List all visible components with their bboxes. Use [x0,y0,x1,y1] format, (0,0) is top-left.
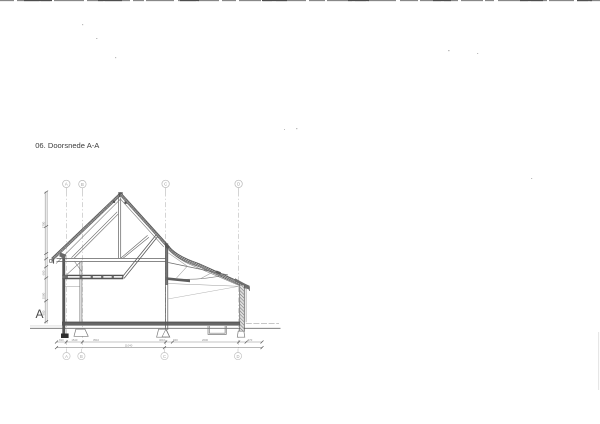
svg-text:500: 500 [173,338,178,342]
svg-text:3510: 3510 [93,338,99,342]
svg-text:2580: 2580 [41,292,45,299]
svg-text:2600: 2600 [202,338,208,342]
svg-text:C: C [163,354,166,359]
svg-text:11040: 11040 [125,344,133,348]
svg-text:C: C [164,182,167,187]
svg-text:D: D [236,354,239,359]
svg-text:4010: 4010 [159,338,165,342]
svg-text:A: A [65,354,68,359]
svg-text:970: 970 [248,338,253,342]
svg-text:810: 810 [59,338,64,342]
svg-text:2700: 2700 [41,221,45,228]
svg-text:B: B [80,354,83,359]
svg-text:1540: 1540 [71,338,77,342]
svg-text:A: A [65,182,68,187]
svg-text:B: B [81,182,84,187]
svg-text:690: 690 [41,270,45,275]
svg-text:D: D [237,182,240,187]
svg-text:06. Doorsnede A-A: 06. Doorsnede A-A [35,141,100,150]
svg-text:900: 900 [41,310,45,315]
